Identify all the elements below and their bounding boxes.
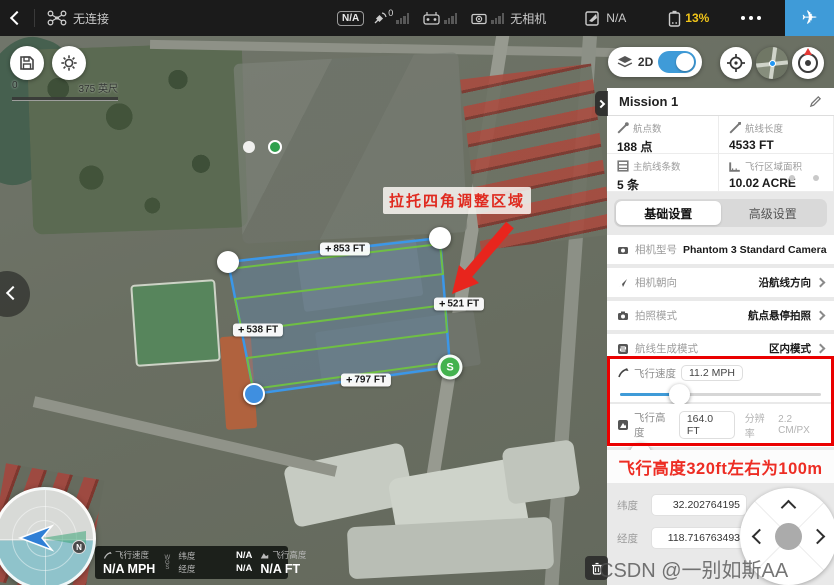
stats-pagination-dots[interactable] — [789, 175, 819, 181]
settings-button[interactable] — [52, 46, 86, 80]
more-menu-button[interactable] — [741, 16, 745, 20]
gps-mode-badge: N/A — [337, 11, 364, 26]
speed-value-field[interactable]: 11.2 MPH — [681, 365, 743, 381]
heading-arrow-icon — [617, 277, 629, 289]
telemetry-speed: 飞行速度 N/A MPH — [103, 549, 155, 576]
row-camera-model[interactable]: 相机型号 Phantom 3 Standard Camera — [607, 235, 834, 264]
compass-reset-button[interactable] — [792, 47, 824, 79]
tab-basic-settings[interactable]: 基础设置 — [616, 201, 721, 225]
map-feature-white-bldg-4 — [347, 517, 554, 580]
flight-speed-control: 飞行速度 11.2 MPH — [607, 359, 834, 402]
mission-board-icon — [584, 10, 601, 27]
crosshair-icon — [726, 53, 746, 73]
minimap-button[interactable] — [756, 47, 788, 79]
midpoint-icon: + — [238, 325, 244, 335]
row-photo-mode[interactable]: 拍照模式 航点悬停拍照 — [607, 301, 834, 330]
battery-percent: 13% — [685, 11, 709, 25]
row-camera-heading[interactable]: 相机朝向 沿航线方向 — [607, 268, 834, 297]
camera-status: 无相机 — [510, 10, 546, 27]
gps-signal-bars — [396, 13, 409, 24]
camera-signal-bars — [491, 13, 504, 24]
stat-route-length: 航线长度 4533 FT — [719, 116, 834, 154]
mission-status-value: N/A — [606, 11, 626, 25]
attitude-compass-widget: N — [0, 487, 96, 585]
altitude-icon — [260, 551, 269, 560]
speed-slider-thumb[interactable] — [669, 384, 690, 405]
speed-slider[interactable] — [617, 384, 824, 406]
map-feature-road-bottom — [33, 396, 338, 476]
waypoint-icon — [617, 122, 629, 134]
dpad-up-button[interactable] — [781, 500, 797, 516]
drone-icon — [47, 10, 67, 26]
telemetry-altitude: 飞行高度 N/A FT — [260, 549, 306, 576]
start-point-marker[interactable]: S — [438, 355, 463, 380]
chevron-left-icon — [10, 11, 24, 25]
battery-icon — [668, 10, 681, 27]
map-2d-toggle[interactable]: 2D — [608, 47, 702, 77]
resolution-value: 2.2 CM/PX — [778, 414, 824, 436]
dpad-center-knob[interactable] — [775, 523, 802, 550]
edge-length-right[interactable]: + 521 FT — [434, 298, 484, 311]
settings-tabs: 基础设置 高级设置 — [614, 199, 827, 227]
airplane-icon: ✈ — [802, 7, 818, 30]
attitude-indicator — [0, 490, 93, 585]
photo-mode-icon — [617, 310, 629, 322]
minimap-location-dot — [769, 60, 776, 67]
dpad-right-button[interactable] — [810, 529, 826, 545]
map-feature-red-roofs — [460, 64, 612, 251]
mission-title: Mission 1 — [619, 94, 809, 109]
route-icon — [729, 122, 741, 134]
chevron-left-icon — [6, 286, 20, 300]
flight-altitude-control: 飞行高度 164.0 FT 分辨率 2.2 CM/PX — [607, 404, 834, 447]
locate-me-button[interactable] — [720, 47, 752, 79]
north-badge: N — [72, 540, 86, 554]
stat-area: 飞行区域面积 10.02 ACRE — [719, 154, 834, 192]
save-mission-button[interactable] — [10, 46, 44, 80]
map-poi-white-dot — [243, 141, 255, 153]
mission-stats: 航点数 188 点 航线长度 4533 FT 主航线条数 5 条 飞行区域面积 … — [607, 116, 834, 192]
app-window: + 853 FT + 521 FT + 538 FT + 797 FT S 拉托… — [0, 0, 834, 585]
mission-header: Mission 1 — [607, 88, 834, 116]
camera-link-icon — [471, 12, 487, 25]
scale-end: 375 英尺 — [79, 80, 118, 95]
ellipsis-icon — [741, 16, 745, 20]
longitude-field[interactable]: 118.716763493 — [651, 527, 747, 549]
edge-length-top[interactable]: + 853 FT — [320, 243, 370, 256]
connection-status: 无连接 — [73, 10, 109, 27]
corner-handle-tr[interactable] — [429, 227, 451, 249]
chevron-right-icon — [816, 344, 826, 354]
map-feature-white-bldg-3 — [501, 439, 580, 504]
edge-length-bottom[interactable]: + 797 FT — [341, 374, 391, 387]
chevron-right-icon — [816, 311, 826, 321]
layers-icon — [617, 55, 633, 69]
midpoint-icon: + — [346, 375, 352, 385]
speed-icon — [103, 551, 112, 560]
edge-length-left[interactable]: + 538 FT — [233, 324, 283, 337]
map-poi-green-marker — [268, 140, 282, 154]
speed-icon — [617, 367, 629, 379]
stat-waypoints: 航点数 188 点 — [607, 116, 719, 154]
camera-icon — [617, 244, 629, 256]
corner-handle-tl[interactable] — [217, 251, 239, 273]
telemetry-bar: 飞行速度 N/A MPH WGS 纬度N/A 经度N/A 飞行高度 N/A FT — [95, 546, 288, 579]
chevron-right-icon — [596, 99, 604, 107]
panel-collapse-tab[interactable] — [595, 91, 608, 116]
midpoint-icon: + — [439, 299, 445, 309]
dpad-left-button[interactable] — [752, 529, 768, 545]
map-annotation: 拉托四角调整区域 — [383, 187, 531, 214]
latitude-field[interactable]: 32.202764195 — [651, 494, 747, 516]
remote-controller-icon — [423, 11, 440, 25]
start-flight-button[interactable]: ✈ — [785, 0, 834, 36]
toggle-2d-switch[interactable] — [658, 51, 696, 73]
map-feature-sports-field — [130, 279, 221, 367]
back-button[interactable] — [0, 13, 34, 23]
map-scale-bar: 0 375 英尺 — [12, 80, 118, 101]
mode-2d-label: 2D — [638, 55, 653, 69]
compass-icon — [798, 53, 818, 73]
edit-pencil-icon[interactable] — [809, 95, 822, 108]
gear-icon — [60, 54, 78, 72]
satellite-count: 0 — [388, 8, 393, 18]
tab-advanced-settings[interactable]: 高级设置 — [721, 201, 826, 225]
scale-start: 0 — [12, 80, 18, 95]
stat-main-lines: 主航线条数 5 条 — [607, 154, 719, 192]
chevron-right-icon — [816, 278, 826, 288]
rc-signal-bars — [444, 13, 457, 24]
midpoint-icon: + — [325, 244, 331, 254]
wgs-label: WGS — [163, 555, 170, 570]
ruler-icon — [729, 160, 741, 172]
altitude-note: 飞行高度320ft左右为100m — [607, 450, 834, 483]
telemetry-coords: 纬度N/A 经度N/A — [178, 550, 252, 575]
satellite-icon — [372, 11, 388, 26]
grid-icon — [617, 160, 629, 172]
floppy-icon — [19, 55, 35, 71]
route-mode-icon — [617, 343, 629, 355]
altitude-value-field[interactable]: 164.0 FT — [679, 411, 735, 439]
altitude-icon — [617, 419, 629, 431]
divider — [34, 9, 35, 27]
corner-handle-bl[interactable] — [243, 383, 265, 405]
top-status-bar: 无连接 N/A 0 无相机 N/A 1 — [0, 0, 834, 36]
watermark: CSDN @一别如斯AA — [599, 554, 788, 583]
